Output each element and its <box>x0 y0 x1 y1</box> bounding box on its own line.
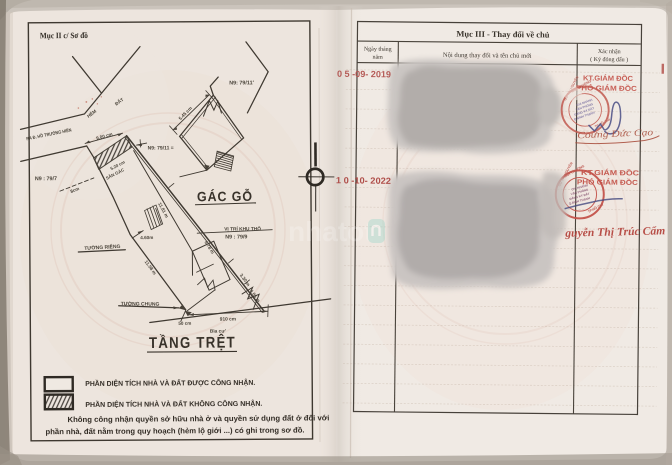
svg-text:phần nhà, đất nằm trong quy ho: phần nhà, đất nằm trong quy hoạch (hẻm l… <box>46 426 305 437</box>
svg-text:N9 : 79/7: N9 : 79/7 <box>35 176 57 182</box>
svg-text:Xác nhận: Xác nhận <box>598 49 621 55</box>
svg-text:Nội dung thay đổi và tên chủ m: Nội dung thay đổi và tên chủ mới <box>443 52 532 60</box>
svg-text:nhatot: nhatot <box>288 216 374 247</box>
svg-text:4.60m: 4.60m <box>140 235 153 240</box>
svg-text:GÁC GỖ: GÁC GỖ <box>197 189 253 204</box>
svg-text:N9 : 79/9: N9 : 79/9 <box>225 234 247 240</box>
svg-text:Ngày tháng: Ngày tháng <box>364 47 392 53</box>
svg-text:năm: năm <box>372 55 383 61</box>
svg-text:Mục III - Thay đổi về chủ: Mục III - Thay đổi về chủ <box>456 30 549 40</box>
svg-text:guyễn Thị Trúc Cẩm: guyễn Thị Trúc Cẩm <box>564 224 665 239</box>
svg-text:0 5 -09- 2019: 0 5 -09- 2019 <box>337 69 391 80</box>
svg-text:1 0 -10- 2022: 1 0 -10- 2022 <box>336 175 391 186</box>
svg-text:N9: 79/11′: N9: 79/11′ <box>229 80 254 86</box>
svg-text:910 cm: 910 cm <box>220 316 236 322</box>
svg-text:TẦNG TRỆT: TẦNG TRỆT <box>149 333 236 352</box>
svg-text:Mục II c/ Sơ đồ: Mục II c/ Sơ đồ <box>40 31 88 40</box>
svg-text:50 cm: 50 cm <box>178 321 191 326</box>
svg-text:N9: 79/11 =: N9: 79/11 = <box>148 145 174 151</box>
svg-text:( Ký đóng dấu ): ( Ký đóng dấu ) <box>590 56 628 63</box>
svg-text:Không công nhận quyền sở hữu n: Không công nhận quyền sở hữu nhà ở và qu… <box>67 413 329 424</box>
